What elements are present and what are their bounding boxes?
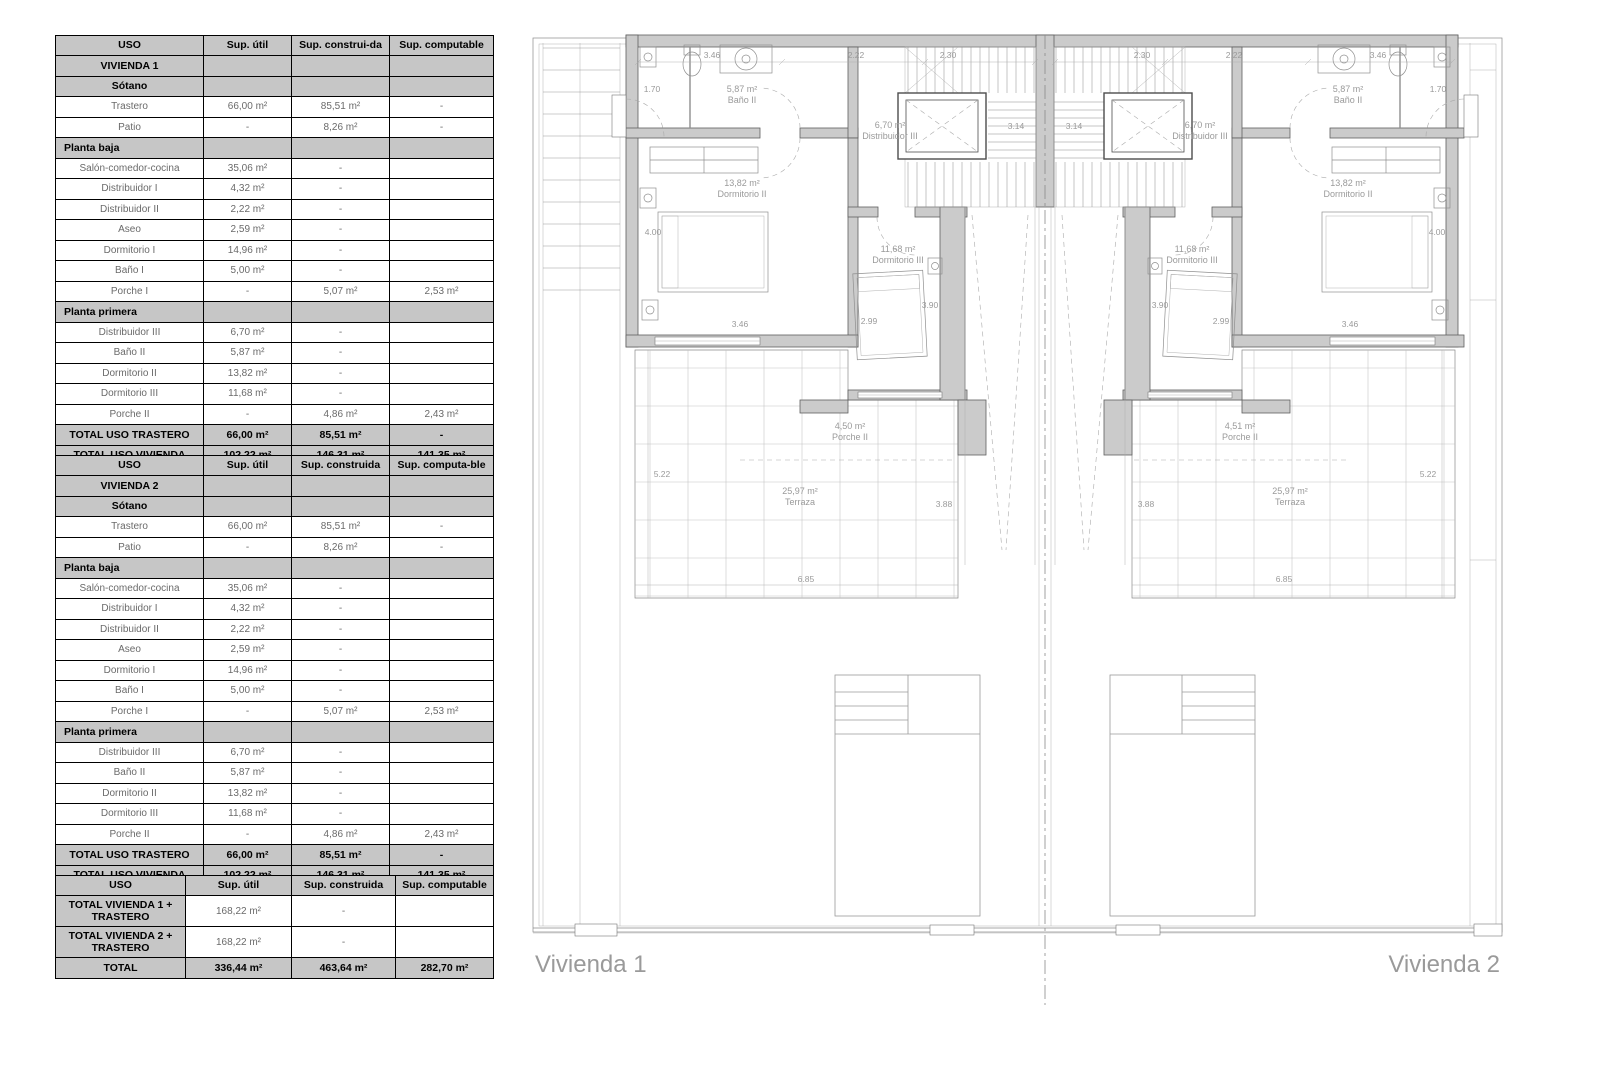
- table-row: Distribuidor II2,22 m²-: [56, 199, 494, 220]
- table-row: Aseo2,59 m²-: [56, 640, 494, 661]
- row-value: [292, 476, 390, 497]
- table-row: Patio-8,26 m²-: [56, 537, 494, 558]
- row-value: [390, 138, 494, 159]
- row-value: -: [292, 681, 390, 702]
- dim-label: 2.22: [848, 50, 865, 60]
- row-value: 2,59 m²: [204, 640, 292, 661]
- row-label: Planta baja: [56, 138, 204, 159]
- row-label: Distribuidor II: [56, 199, 204, 220]
- table-row: Distribuidor I4,32 m²-: [56, 599, 494, 620]
- row-value: -: [292, 240, 390, 261]
- row-value: 5,00 m²: [204, 261, 292, 282]
- row-value: [396, 927, 494, 958]
- row-value: [204, 302, 292, 323]
- row-label: TOTAL USO TRASTERO: [56, 845, 204, 866]
- row-label: Salón-comedor-cocina: [56, 158, 204, 179]
- row-label: Dormitorio I: [56, 240, 204, 261]
- row-value: 5,87 m²: [204, 343, 292, 364]
- row-value: [390, 322, 494, 343]
- row-value: 2,53 m²: [390, 701, 494, 722]
- table-row: TOTAL USO TRASTERO66,00 m²85,51 m²-: [56, 425, 494, 446]
- row-value: -: [292, 384, 390, 405]
- room-area-label: 11,68 m²: [1175, 244, 1210, 254]
- pool-left: [835, 675, 980, 916]
- row-value: 66,00 m²: [204, 845, 292, 866]
- row-value: 35,06 m²: [204, 158, 292, 179]
- table-row: VIVIENDA 1: [56, 56, 494, 77]
- row-value: 4,86 m²: [292, 824, 390, 845]
- column-header: Sup. computable: [390, 36, 494, 56]
- row-value: 85,51 m²: [292, 425, 390, 446]
- dim-label: 5.22: [1420, 469, 1437, 479]
- row-value: -: [292, 599, 390, 620]
- table-row: Porche I-5,07 m²2,53 m²: [56, 701, 494, 722]
- row-value: -: [292, 343, 390, 364]
- row-value: 4,86 m²: [292, 404, 390, 425]
- dim-label: 6.85: [1276, 574, 1293, 584]
- table-row: Sótano: [56, 496, 494, 517]
- room-area-label: 5,87 m²: [727, 84, 758, 94]
- room-area-label: 6,70 m²: [1185, 120, 1216, 130]
- row-value: 11,68 m²: [204, 804, 292, 825]
- unit-name-vivienda-2: Vivienda 2: [1388, 951, 1500, 978]
- row-value: -: [204, 281, 292, 302]
- row-label: Sótano: [56, 496, 204, 517]
- table-row: Trastero66,00 m²85,51 m²-: [56, 517, 494, 538]
- row-value: 8,26 m²: [292, 537, 390, 558]
- row-value: 4,32 m²: [204, 599, 292, 620]
- row-label: Baño II: [56, 763, 204, 784]
- row-value: -: [292, 322, 390, 343]
- row-value: -: [390, 117, 494, 138]
- row-value: -: [292, 179, 390, 200]
- table-row: Trastero66,00 m²85,51 m²-: [56, 97, 494, 118]
- room-name-label: Distribuidor III: [862, 131, 918, 141]
- row-value: 5,87 m²: [204, 763, 292, 784]
- row-value: 282,70 m²: [396, 958, 494, 979]
- row-value: 85,51 m²: [292, 517, 390, 538]
- entry-step-right: [1464, 95, 1478, 137]
- row-label: Patio: [56, 537, 204, 558]
- row-value: 6,70 m²: [204, 322, 292, 343]
- table-row: Patio-8,26 m²-: [56, 117, 494, 138]
- table-row: TOTAL336,44 m²463,64 m²282,70 m²: [56, 958, 494, 979]
- left-side-strip: [543, 43, 620, 926]
- row-label: Distribuidor II: [56, 619, 204, 640]
- row-value: [204, 496, 292, 517]
- row-value: [292, 56, 390, 77]
- dim-label: 2.30: [1134, 50, 1151, 60]
- row-value: 2,43 m²: [390, 824, 494, 845]
- row-value: 2,53 m²: [390, 281, 494, 302]
- table-row: Planta baja: [56, 138, 494, 159]
- row-value: [390, 220, 494, 241]
- row-value: -: [292, 742, 390, 763]
- row-value: [204, 56, 292, 77]
- row-label: Dormitorio II: [56, 363, 204, 384]
- row-value: 168,22 m²: [186, 896, 292, 927]
- row-value: -: [390, 845, 494, 866]
- row-value: [390, 496, 494, 517]
- row-value: [390, 578, 494, 599]
- row-label: Aseo: [56, 220, 204, 241]
- dim-label: 1.70: [1430, 84, 1447, 94]
- row-value: -: [292, 763, 390, 784]
- table-row: Dormitorio III11,68 m²-: [56, 384, 494, 405]
- dim-label: 6.85: [798, 574, 815, 584]
- row-value: -: [204, 404, 292, 425]
- room-name-label: Dormitorio III: [872, 255, 924, 265]
- row-value: -: [292, 158, 390, 179]
- terrace-right: [1132, 350, 1455, 598]
- room-name-label: Porche II: [1222, 432, 1258, 442]
- row-value: [390, 179, 494, 200]
- row-value: [390, 681, 494, 702]
- table-row: Distribuidor I4,32 m²-: [56, 179, 494, 200]
- room-area-label: 5,87 m²: [1333, 84, 1364, 94]
- row-value: [390, 476, 494, 497]
- row-value: [390, 558, 494, 579]
- row-value: [292, 138, 390, 159]
- row-value: 2,22 m²: [204, 619, 292, 640]
- row-value: -: [292, 220, 390, 241]
- table-row: Aseo2,59 m²-: [56, 220, 494, 241]
- row-label: Porche I: [56, 281, 204, 302]
- dim-label: 4.00: [1429, 227, 1446, 237]
- row-value: -: [292, 363, 390, 384]
- row-value: [390, 261, 494, 282]
- table-header-row: USOSup. útilSup. construidaSup. computab…: [56, 876, 494, 896]
- row-value: [390, 660, 494, 681]
- terrace-left: [635, 350, 958, 598]
- row-label: Planta primera: [56, 722, 204, 743]
- column-header: Sup. construida: [292, 876, 396, 896]
- row-label: Aseo: [56, 640, 204, 661]
- table-row: Baño II5,87 m²-: [56, 343, 494, 364]
- room-area-label: 6,70 m²: [875, 120, 906, 130]
- dim-label: 3.88: [936, 499, 953, 509]
- row-value: [292, 76, 390, 97]
- row-value: 2,43 m²: [390, 404, 494, 425]
- row-value: -: [292, 199, 390, 220]
- row-value: [390, 343, 494, 364]
- table-row: Dormitorio III11,68 m²-: [56, 804, 494, 825]
- row-value: -: [292, 783, 390, 804]
- row-value: 66,00 m²: [204, 97, 292, 118]
- plot-boundary: [533, 38, 1502, 933]
- row-value: 85,51 m²: [292, 97, 390, 118]
- table-row: Dormitorio I14,96 m²-: [56, 660, 494, 681]
- dim-label: 3.46: [1370, 50, 1387, 60]
- dim-label: 2.22: [1226, 50, 1243, 60]
- dim-label: 4.00: [645, 227, 662, 237]
- row-value: [204, 722, 292, 743]
- table-row: Porche II-4,86 m²2,43 m²: [56, 404, 494, 425]
- row-label: Baño II: [56, 343, 204, 364]
- row-label: Dormitorio I: [56, 660, 204, 681]
- table-row: Salón-comedor-cocina35,06 m²-: [56, 158, 494, 179]
- dim-label: 3.46: [704, 50, 721, 60]
- row-value: [390, 783, 494, 804]
- column-header: Sup. útil: [204, 456, 292, 476]
- row-value: 13,82 m²: [204, 783, 292, 804]
- row-value: [390, 763, 494, 784]
- row-label: TOTAL: [56, 958, 186, 979]
- row-label: Sótano: [56, 76, 204, 97]
- row-value: -: [292, 640, 390, 661]
- row-value: [292, 302, 390, 323]
- row-value: 2,22 m²: [204, 199, 292, 220]
- row-value: [396, 896, 494, 927]
- column-header: USO: [56, 876, 186, 896]
- column-header: USO: [56, 36, 204, 56]
- row-value: [390, 804, 494, 825]
- row-value: 5,07 m²: [292, 701, 390, 722]
- row-value: 168,22 m²: [186, 927, 292, 958]
- dim-label: 3.46: [732, 319, 749, 329]
- row-value: [390, 302, 494, 323]
- dim-label: 3.46: [1342, 319, 1359, 329]
- row-value: -: [390, 97, 494, 118]
- row-value: [292, 496, 390, 517]
- row-value: [390, 722, 494, 743]
- room-name-label: Dormitorio II: [1323, 189, 1372, 199]
- row-value: 14,96 m²: [204, 660, 292, 681]
- room-name-label: Porche II: [832, 432, 868, 442]
- room-name-label: Dormitorio II: [717, 189, 766, 199]
- row-value: 66,00 m²: [204, 425, 292, 446]
- row-value: [390, 158, 494, 179]
- row-value: [390, 240, 494, 261]
- row-value: 463,64 m²: [292, 958, 396, 979]
- dim-label: 3.90: [922, 300, 939, 310]
- table-row: TOTAL VIVIENDA 1 + TRASTERO168,22 m²-: [56, 896, 494, 927]
- room-area-label: 25,97 m²: [1272, 486, 1308, 496]
- column-header: Sup. útil: [186, 876, 292, 896]
- room-area-label: 13,82 m²: [724, 178, 760, 188]
- dim-label: 2.99: [861, 316, 878, 326]
- table-row: Sótano: [56, 76, 494, 97]
- table-row: Salón-comedor-cocina35,06 m²-: [56, 578, 494, 599]
- table-row: Dormitorio II13,82 m²-: [56, 783, 494, 804]
- table-row: Dormitorio I14,96 m²-: [56, 240, 494, 261]
- row-label: Dormitorio III: [56, 804, 204, 825]
- room-name-label: Dormitorio III: [1166, 255, 1218, 265]
- table-header-row: USOSup. útilSup. construidaSup. computa-…: [56, 456, 494, 476]
- row-value: [204, 138, 292, 159]
- row-value: -: [204, 537, 292, 558]
- row-value: -: [390, 537, 494, 558]
- row-value: -: [292, 578, 390, 599]
- row-value: -: [292, 660, 390, 681]
- dim-label: 3.90: [1152, 300, 1169, 310]
- row-value: -: [292, 896, 396, 927]
- pool-right: [1110, 675, 1255, 916]
- row-label: Patio: [56, 117, 204, 138]
- row-value: 2,59 m²: [204, 220, 292, 241]
- row-value: [204, 476, 292, 497]
- row-label: Planta primera: [56, 302, 204, 323]
- table-row: TOTAL VIVIENDA 2 + TRASTERO168,22 m²-: [56, 927, 494, 958]
- dim-label: 2.30: [940, 50, 957, 60]
- room-area-label: 13,82 m²: [1330, 178, 1366, 188]
- column-header: Sup. construi-da: [292, 36, 390, 56]
- surface-table-vivienda-2: USOSup. útilSup. construidaSup. computa-…: [55, 455, 494, 886]
- surface-table-vivienda-1: USOSup. útilSup. construi-daSup. computa…: [55, 35, 494, 466]
- room-area-label: 4,50 m²: [835, 421, 866, 431]
- table-row: Baño I5,00 m²-: [56, 261, 494, 282]
- table-row: Dormitorio II13,82 m²-: [56, 363, 494, 384]
- row-value: [390, 384, 494, 405]
- row-value: [390, 619, 494, 640]
- room-area-label: 4,51 m²: [1225, 421, 1256, 431]
- row-value: [390, 56, 494, 77]
- row-value: [390, 199, 494, 220]
- table-row: Planta baja: [56, 558, 494, 579]
- table-row: Distribuidor III6,70 m²-: [56, 322, 494, 343]
- row-value: 13,82 m²: [204, 363, 292, 384]
- row-label: Baño I: [56, 681, 204, 702]
- row-value: [390, 76, 494, 97]
- row-value: [390, 742, 494, 763]
- row-label: Distribuidor I: [56, 599, 204, 620]
- row-value: -: [390, 517, 494, 538]
- row-value: -: [390, 425, 494, 446]
- dim-label: 5.22: [654, 469, 671, 479]
- row-label: Trastero: [56, 97, 204, 118]
- row-label: Porche II: [56, 824, 204, 845]
- table-row: VIVIENDA 2: [56, 476, 494, 497]
- room-name-label: Distribuidor III: [1172, 131, 1228, 141]
- room-name-label: Baño II: [728, 95, 757, 105]
- surface-table-totals: USOSup. útilSup. construidaSup. computab…: [55, 875, 494, 979]
- table-row: Baño I5,00 m²-: [56, 681, 494, 702]
- row-value: [204, 76, 292, 97]
- right-side-strip: [1470, 43, 1496, 926]
- table-row: Baño II5,87 m²-: [56, 763, 494, 784]
- row-value: [390, 640, 494, 661]
- column-header: USO: [56, 456, 204, 476]
- row-value: 336,44 m²: [186, 958, 292, 979]
- row-value: -: [204, 824, 292, 845]
- table-row: Porche I-5,07 m²2,53 m²: [56, 281, 494, 302]
- column-header: Sup. computa-ble: [390, 456, 494, 476]
- row-value: -: [292, 619, 390, 640]
- row-label: VIVIENDA 2: [56, 476, 204, 497]
- row-value: [204, 558, 292, 579]
- room-name-label: Baño II: [1334, 95, 1363, 105]
- row-value: 5,00 m²: [204, 681, 292, 702]
- room-area-label: 11,68 m²: [881, 244, 916, 254]
- room-name-label: Terraza: [785, 497, 815, 507]
- row-label: Distribuidor III: [56, 322, 204, 343]
- row-label: VIVIENDA 1: [56, 56, 204, 77]
- column-header: Sup. computable: [396, 876, 494, 896]
- row-label: Dormitorio III: [56, 384, 204, 405]
- row-value: -: [204, 117, 292, 138]
- column-header: Sup. útil: [204, 36, 292, 56]
- row-value: -: [292, 804, 390, 825]
- row-value: -: [292, 261, 390, 282]
- row-value: 66,00 m²: [204, 517, 292, 538]
- row-value: [292, 558, 390, 579]
- row-value: 14,96 m²: [204, 240, 292, 261]
- table-row: Distribuidor II2,22 m²-: [56, 619, 494, 640]
- row-value: [390, 599, 494, 620]
- row-label: Planta baja: [56, 558, 204, 579]
- dim-label: 3.14: [1008, 121, 1025, 131]
- room-area-label: 25,97 m²: [782, 486, 818, 496]
- table-header-row: USOSup. útilSup. construi-daSup. computa…: [56, 36, 494, 56]
- row-label: Porche I: [56, 701, 204, 722]
- table-row: Planta primera: [56, 722, 494, 743]
- row-label: Dormitorio II: [56, 783, 204, 804]
- table-row: Porche II-4,86 m²2,43 m²: [56, 824, 494, 845]
- dim-label: 3.14: [1066, 121, 1083, 131]
- dim-label: 2.99: [1213, 316, 1230, 326]
- column-header: Sup. construida: [292, 456, 390, 476]
- row-value: 35,06 m²: [204, 578, 292, 599]
- row-label: Distribuidor III: [56, 742, 204, 763]
- dim-label: 3.88: [1138, 499, 1155, 509]
- row-value: -: [292, 927, 396, 958]
- row-value: -: [204, 701, 292, 722]
- table-row: Distribuidor III6,70 m²-: [56, 742, 494, 763]
- row-value: 6,70 m²: [204, 742, 292, 763]
- row-value: 4,32 m²: [204, 179, 292, 200]
- entry-step-left: [612, 95, 626, 137]
- row-value: [292, 722, 390, 743]
- row-value: 85,51 m²: [292, 845, 390, 866]
- row-label: Distribuidor I: [56, 179, 204, 200]
- dim-label: 1.70: [644, 84, 661, 94]
- table-row: TOTAL USO TRASTERO66,00 m²85,51 m²-: [56, 845, 494, 866]
- row-label: Baño I: [56, 261, 204, 282]
- row-label: TOTAL VIVIENDA 2 + TRASTERO: [56, 927, 186, 958]
- row-label: Porche II: [56, 404, 204, 425]
- row-value: [390, 363, 494, 384]
- unit-name-vivienda-1: Vivienda 1: [535, 951, 647, 978]
- row-value: 11,68 m²: [204, 384, 292, 405]
- row-label: TOTAL USO TRASTERO: [56, 425, 204, 446]
- row-value: 8,26 m²: [292, 117, 390, 138]
- row-label: TOTAL VIVIENDA 1 + TRASTERO: [56, 896, 186, 927]
- room-name-label: Terraza: [1275, 497, 1305, 507]
- row-label: Trastero: [56, 517, 204, 538]
- row-value: 5,07 m²: [292, 281, 390, 302]
- table-row: Planta primera: [56, 302, 494, 323]
- row-label: Salón-comedor-cocina: [56, 578, 204, 599]
